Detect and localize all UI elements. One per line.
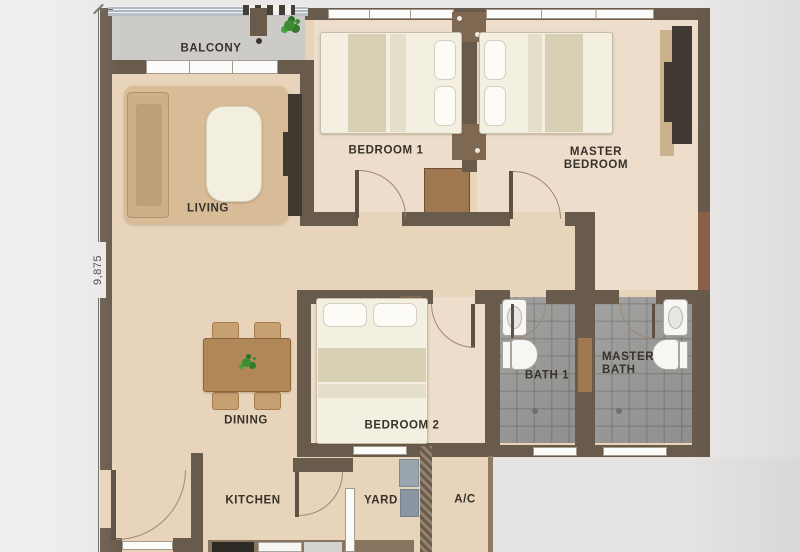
master-bath-toilet-bowl bbox=[652, 339, 679, 370]
pillow bbox=[434, 40, 456, 80]
master-bedroom-window bbox=[486, 9, 654, 19]
wall-balcony-stub-left bbox=[112, 60, 146, 74]
pillow bbox=[373, 303, 417, 327]
bedroom2-label: BEDROOM 2 bbox=[364, 420, 439, 433]
bed-sheet-band bbox=[390, 34, 406, 132]
master-bedroom-label-line2: BEDROOM bbox=[564, 159, 628, 172]
bed-sheet-band bbox=[318, 384, 426, 398]
bed-sheet-band bbox=[348, 34, 386, 132]
bedroom2-window bbox=[353, 446, 407, 455]
bed-sheet-band bbox=[545, 34, 583, 132]
wall-hall-south-3 bbox=[546, 290, 619, 304]
pillow bbox=[434, 86, 456, 126]
counter-draining-board bbox=[304, 542, 342, 552]
bath1-window bbox=[533, 447, 577, 456]
wall-bedroom2-left bbox=[297, 290, 311, 457]
dining-plant-icon bbox=[242, 358, 251, 367]
closet-unit bbox=[424, 168, 470, 216]
balcony-window bbox=[146, 60, 278, 74]
wall-right-upper bbox=[698, 8, 710, 212]
wall-right-lower bbox=[692, 290, 710, 457]
wall-right-red-segment bbox=[698, 212, 710, 290]
floor-drain bbox=[616, 408, 622, 414]
bedroom1-label: BEDROOM 1 bbox=[348, 145, 423, 158]
bed-sheet-band bbox=[528, 34, 542, 132]
wardrobe-shelf bbox=[664, 62, 673, 122]
bath1-toilet-tank bbox=[502, 341, 511, 369]
master-bath-window bbox=[603, 447, 667, 456]
wall-living-bedroom1 bbox=[300, 60, 314, 226]
wall-bath-south bbox=[493, 445, 710, 457]
dryer-icon bbox=[400, 489, 419, 517]
dimension-extension-line bbox=[99, 9, 113, 10]
bottom-door-sill bbox=[122, 541, 173, 550]
bath-divider-wood-insert bbox=[578, 338, 592, 392]
sofa-cushion-line bbox=[136, 104, 162, 206]
tv-bracket bbox=[283, 132, 289, 176]
kitchen-label: KITCHEN bbox=[225, 495, 280, 508]
floor-balcony bbox=[112, 14, 305, 64]
master-bath-toilet-tank bbox=[679, 341, 688, 369]
coffee-table bbox=[206, 106, 262, 202]
wall-bedroom1-south-right bbox=[402, 212, 510, 226]
balcony-post bbox=[250, 8, 267, 36]
floor-drain bbox=[532, 408, 538, 414]
wall-bottom-stub-left bbox=[112, 538, 122, 552]
tv-console bbox=[288, 94, 302, 216]
wall-yard-ac-hatched bbox=[420, 446, 432, 552]
plate-screw bbox=[457, 16, 462, 21]
living-label: LIVING bbox=[187, 203, 229, 216]
bed-sheet-band bbox=[318, 348, 426, 382]
ac-label: A/C bbox=[454, 494, 476, 507]
pillow bbox=[484, 40, 506, 80]
balcony-plant-icon bbox=[284, 20, 295, 31]
yard-label: YARD bbox=[364, 495, 398, 508]
bath1-label: BATH 1 bbox=[525, 370, 569, 383]
pillow bbox=[323, 303, 367, 327]
kitchen-sink-icon bbox=[258, 542, 302, 552]
washer-icon bbox=[399, 459, 419, 487]
plate-screw bbox=[475, 148, 480, 153]
wall-bottom-stub-right bbox=[173, 538, 203, 552]
wardrobe-unit bbox=[672, 26, 692, 144]
stove-icon bbox=[212, 542, 254, 552]
balcony-label: BALCONY bbox=[180, 43, 241, 56]
dining-chair bbox=[254, 392, 281, 410]
dimension-label: 9,875 bbox=[90, 242, 106, 298]
wall-ac-right-thin bbox=[488, 456, 493, 552]
dining-label: DINING bbox=[224, 415, 268, 428]
master-bedroom-label: MASTER BEDROOM bbox=[564, 146, 628, 172]
master-bath-label: MASTER BATH bbox=[602, 351, 654, 377]
bedroom1-window bbox=[328, 9, 454, 19]
master-bath-label-line2: BATH bbox=[602, 364, 654, 377]
outside-area bbox=[493, 457, 800, 552]
master-bath-sink-basin bbox=[668, 306, 683, 329]
wall-kitchen-partial bbox=[293, 458, 353, 472]
floor-plan: 9,875 BALCONY LIVING BEDROOM 1 MASTER BE… bbox=[0, 0, 800, 552]
yard-sliding-door bbox=[345, 488, 355, 552]
floor-master-bedroom-extension bbox=[595, 212, 698, 290]
balcony-post-cap bbox=[256, 38, 262, 44]
master-bedroom-label-line1: MASTER bbox=[564, 146, 628, 159]
pillow bbox=[484, 86, 506, 126]
dining-chair bbox=[212, 392, 239, 410]
wall-bedroom1-south-left bbox=[300, 212, 358, 226]
wall-bath-divider bbox=[575, 212, 595, 445]
master-bath-label-line1: MASTER bbox=[602, 351, 654, 364]
wall-bedroom2-right bbox=[485, 290, 500, 457]
